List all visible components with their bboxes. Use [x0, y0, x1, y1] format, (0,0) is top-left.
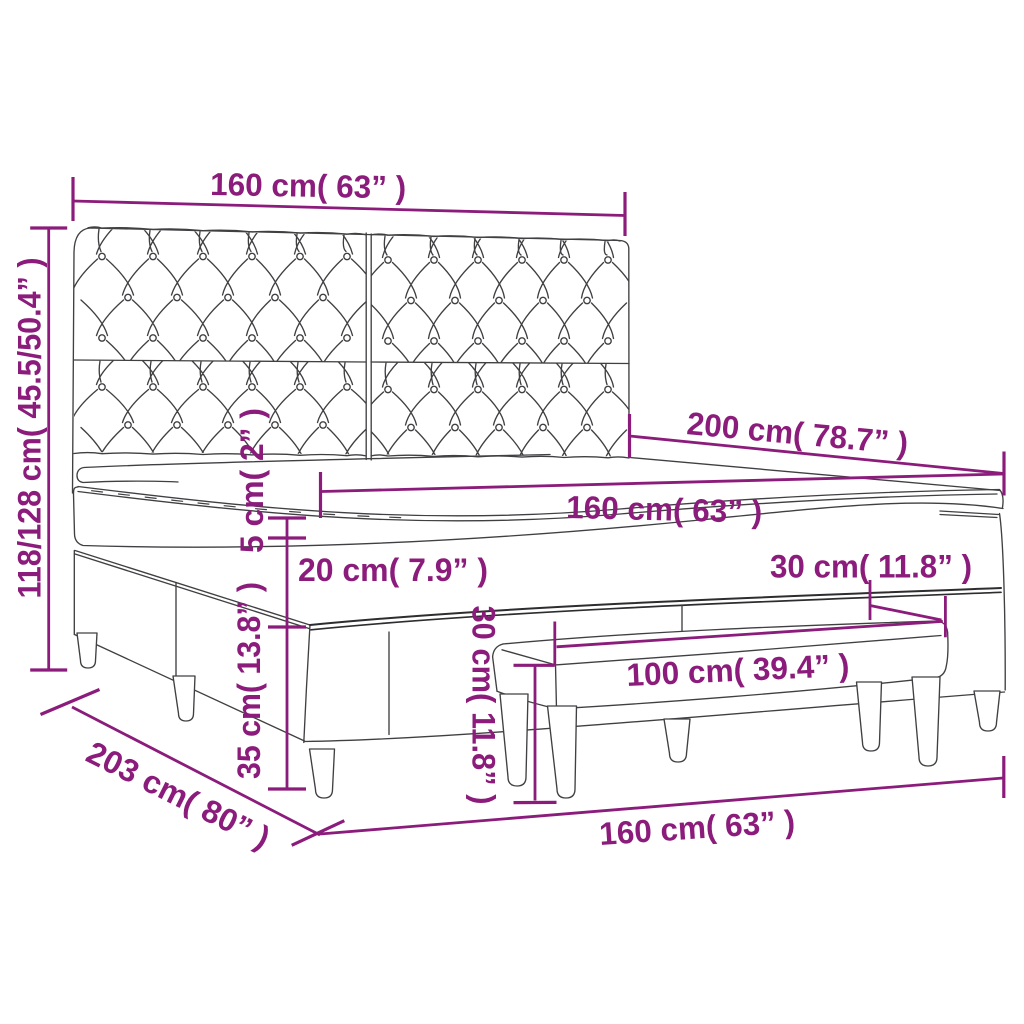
- svg-text:20 cm( 7.9” ): 20 cm( 7.9” ): [298, 552, 488, 588]
- svg-text:30 cm( 11.8” ): 30 cm( 11.8” ): [770, 549, 972, 585]
- svg-text:30 cm( 11.8” ): 30 cm( 11.8” ): [466, 606, 502, 805]
- svg-text:35 cm( 13.8” ): 35 cm( 13.8” ): [231, 582, 267, 779]
- svg-text:118/128 cm( 45.5/50.4” ): 118/128 cm( 45.5/50.4” ): [12, 258, 48, 599]
- svg-text:160 cm( 63” ): 160 cm( 63” ): [210, 166, 407, 205]
- svg-text:5 cm( 2” ): 5 cm( 2” ): [234, 408, 270, 553]
- svg-text:160 cm( 63” ): 160 cm( 63” ): [566, 489, 763, 530]
